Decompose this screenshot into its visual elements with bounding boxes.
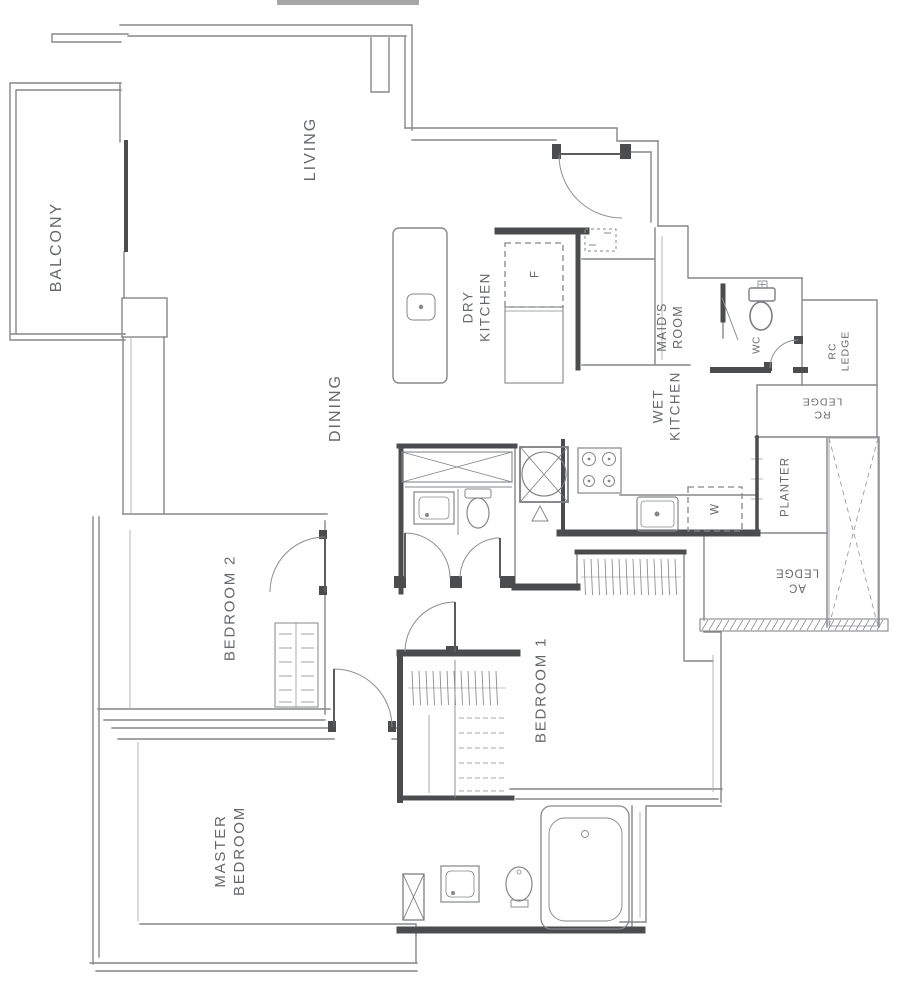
void-cross-icon [829,438,878,626]
wash-basin-icon [414,492,454,524]
floor-trap-icon [532,506,548,521]
floorplan-drawing [0,0,900,990]
room-label-dining: DINING [326,374,346,442]
kitchen-island-sink-icon [393,228,447,383]
column-cross-icon [403,874,424,920]
room-label-wc: WC [752,336,765,354]
bedroom1-wardrobe-shelf-icon [429,660,455,798]
label-fridge-f: F [529,270,544,278]
room-label-bedroom-1: BEDROOM 1 [531,637,550,743]
label-ac-ledge: AC LEDGE [775,565,819,594]
maid-wc-toilet-icon [749,281,775,330]
room-label-bedroom-2: BEDROOM 2 [220,555,239,661]
master-toilet-icon [506,867,532,907]
kitchen-sink-icon [637,497,678,531]
shower-stall-icon [520,447,568,502]
exterior-walls [10,25,879,971]
db-box-icon [585,229,616,251]
room-label-maids-room: MAID'S ROOM [654,302,686,351]
room-label-living: LIVING [301,117,321,181]
toilet-icon [465,489,491,528]
room-label-master-bedroom: MASTER BEDROOM [211,806,249,896]
master-basin-icon [441,866,479,902]
bathtub-icon [541,806,629,929]
label-planter: PLANTER [779,457,794,517]
bedroom2-wardrobe-shelf-icon [275,623,318,707]
floor-plan-canvas: BALCONY LIVING DINING DRY KITCHEN WET KI… [0,0,900,990]
cooker-hob-icon [578,448,621,493]
room-label-dry-kitchen: DRY KITCHEN [460,272,495,342]
room-label-balcony: BALCONY [47,202,67,292]
label-rc-ledge-upper: RC LEDGE [827,331,854,372]
room-label-wet-kitchen: WET KITCHEN [650,371,685,441]
scan-artifact [277,0,419,5]
vanity-counter-icon [402,452,512,535]
label-rc-ledge-lower: RC LEDGE [802,394,843,421]
dry-kitchen-counter [505,307,563,383]
label-washer-w: W [709,503,724,515]
